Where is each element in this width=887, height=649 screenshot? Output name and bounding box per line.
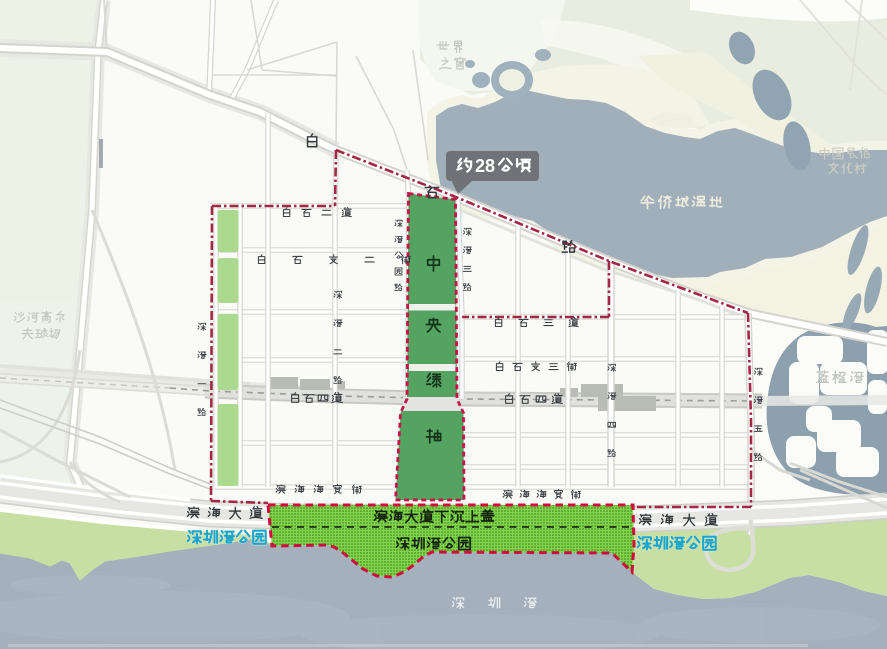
svg-text:28: 28 [475,156,495,176]
